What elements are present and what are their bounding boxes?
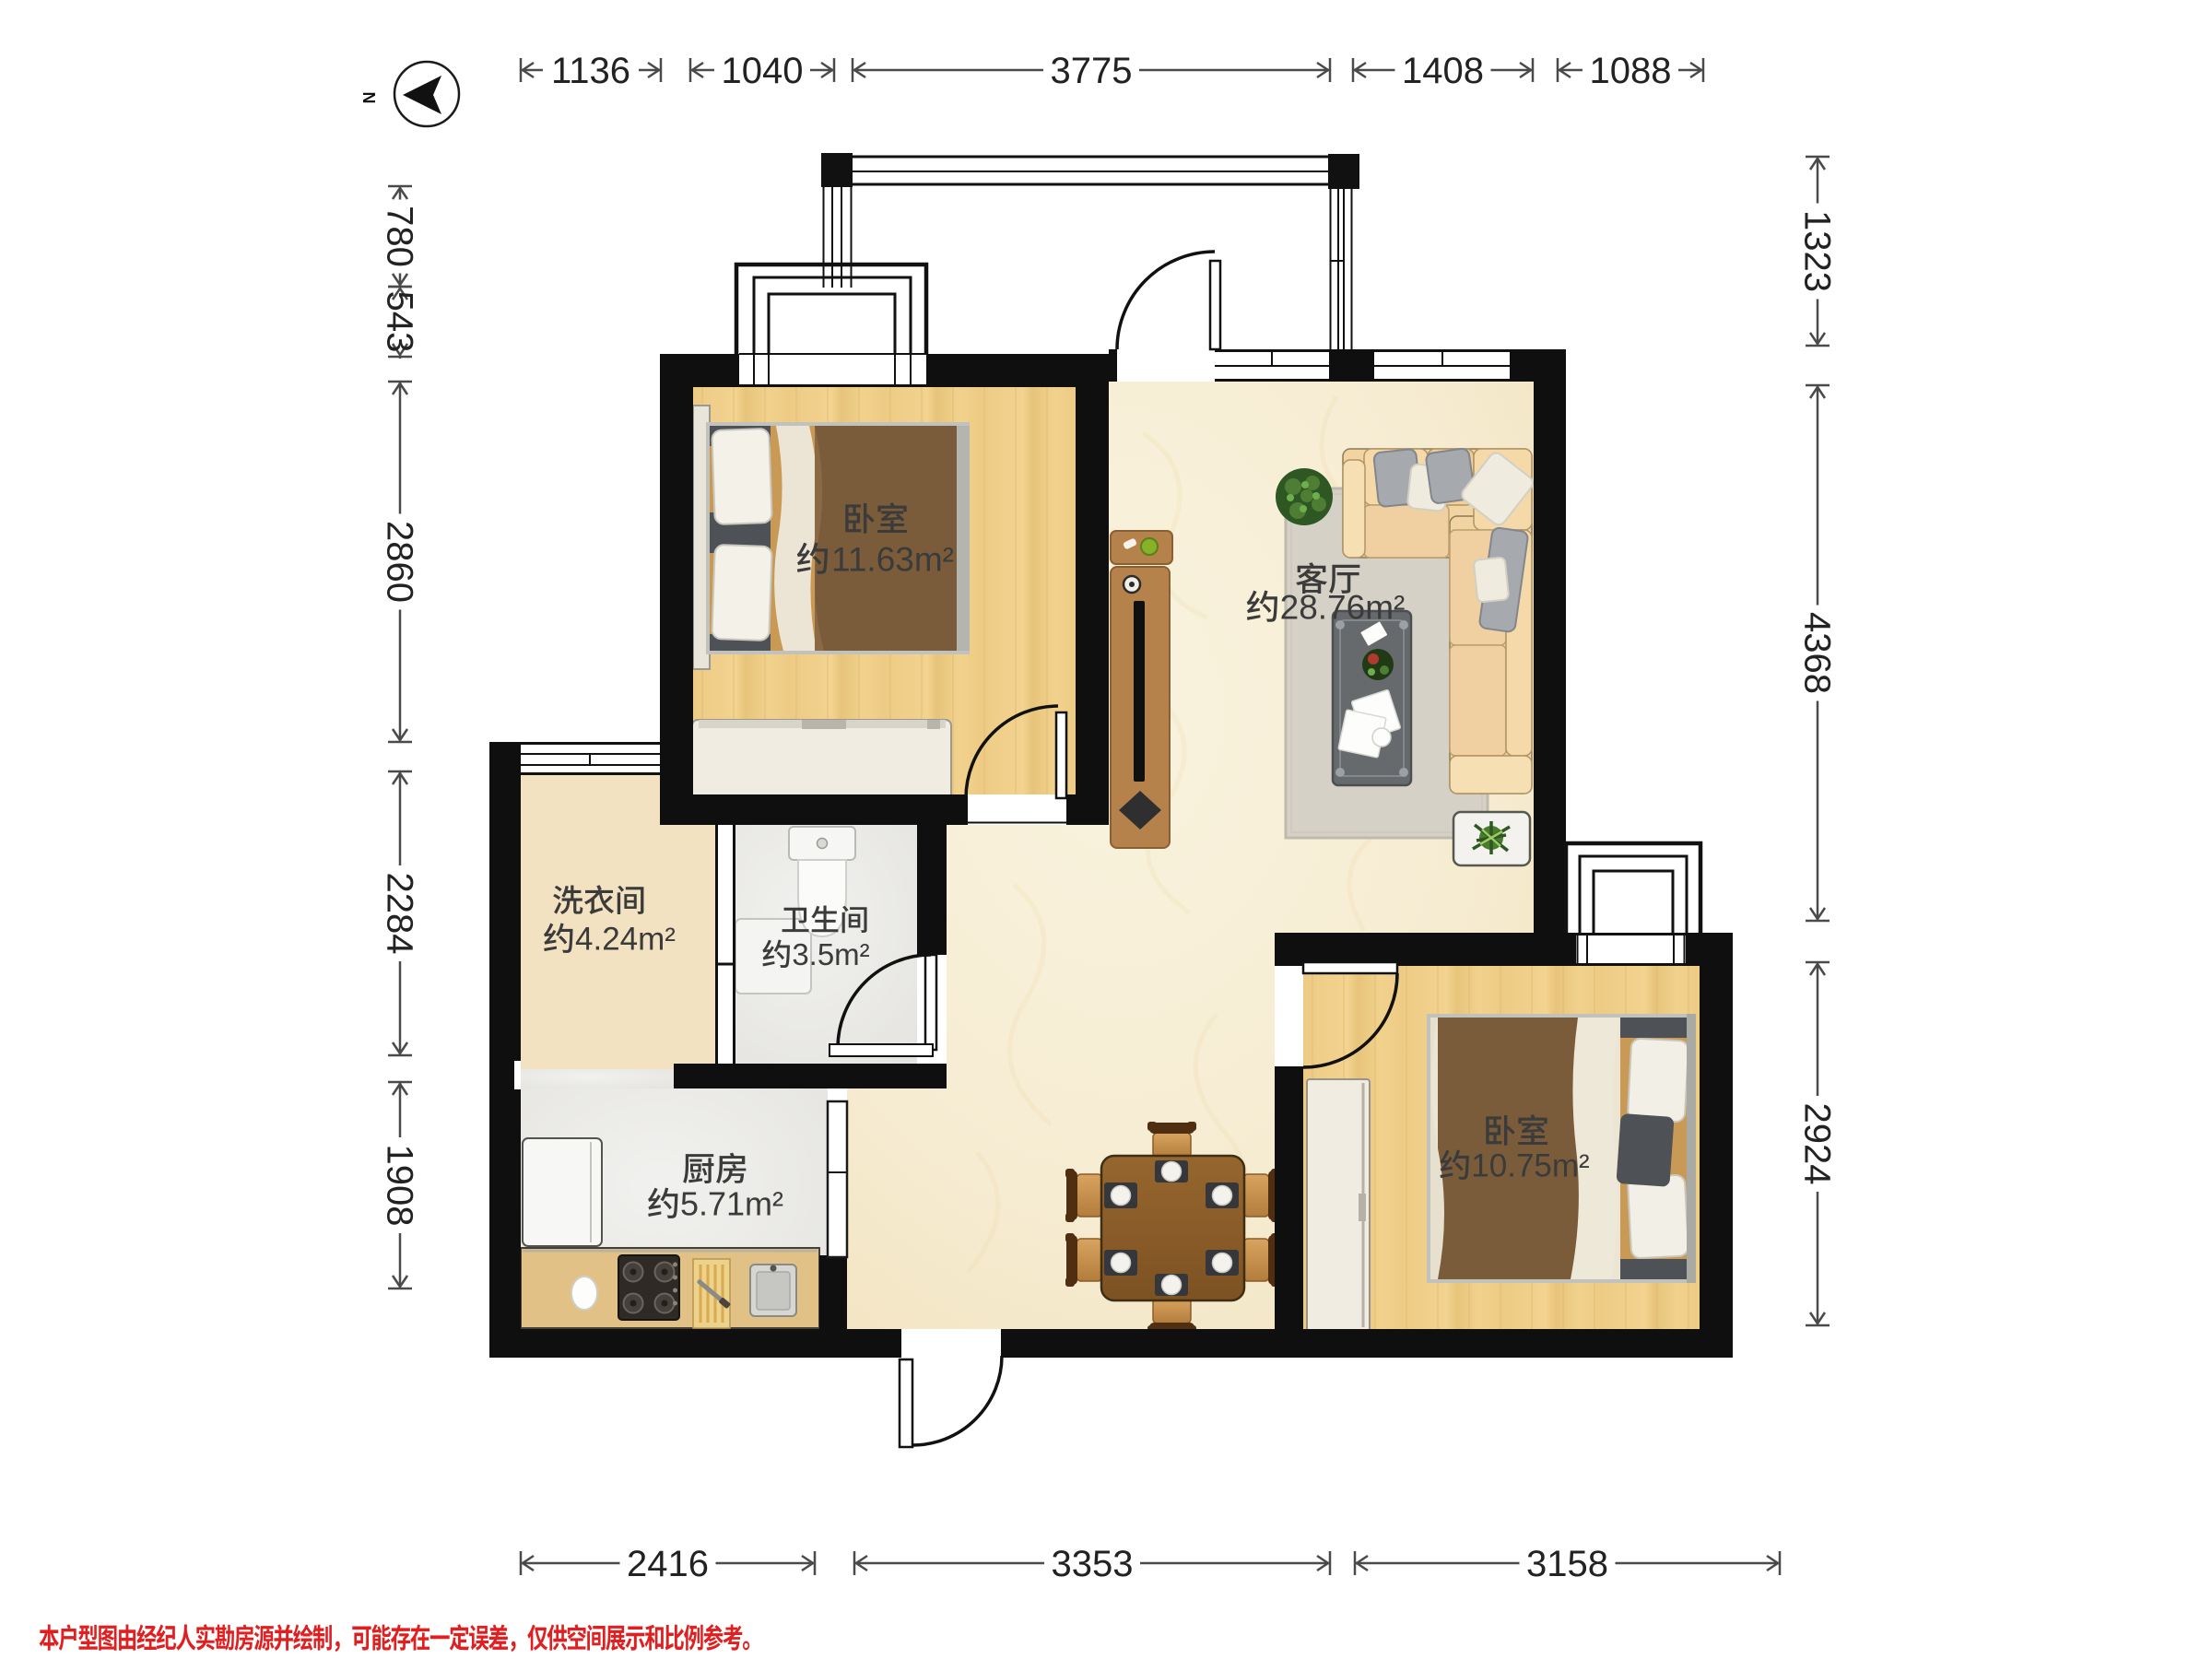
svg-text:5.71m²: 5.71m² xyxy=(680,1184,783,1222)
svg-text:10.75m²: 10.75m² xyxy=(1471,1148,1589,1184)
svg-text:1408: 1408 xyxy=(1402,51,1484,91)
svg-text:3.5m²: 3.5m² xyxy=(792,937,869,971)
svg-text:1040: 1040 xyxy=(722,51,804,91)
svg-text:2416: 2416 xyxy=(627,1544,709,1584)
svg-text:28.76m²: 28.76m² xyxy=(1280,588,1406,626)
svg-text:2924: 2924 xyxy=(1796,1103,1837,1185)
svg-text:2860: 2860 xyxy=(379,521,419,603)
svg-text:3353: 3353 xyxy=(1052,1544,1134,1584)
svg-text:4.24m²: 4.24m² xyxy=(575,922,676,958)
svg-text:2284: 2284 xyxy=(379,873,419,955)
svg-text:780: 780 xyxy=(379,206,419,267)
svg-text:543: 543 xyxy=(379,291,419,353)
svg-text:3158: 3158 xyxy=(1526,1544,1608,1584)
svg-text:N: N xyxy=(360,92,379,104)
svg-text:1088: 1088 xyxy=(1590,51,1672,91)
svg-text:4368: 4368 xyxy=(1796,612,1837,694)
svg-text:11.63m²: 11.63m² xyxy=(831,540,954,578)
svg-text:1323: 1323 xyxy=(1796,210,1837,292)
svg-text:1136: 1136 xyxy=(551,51,630,91)
svg-text:3775: 3775 xyxy=(1051,51,1133,91)
svg-text:1908: 1908 xyxy=(379,1145,419,1227)
